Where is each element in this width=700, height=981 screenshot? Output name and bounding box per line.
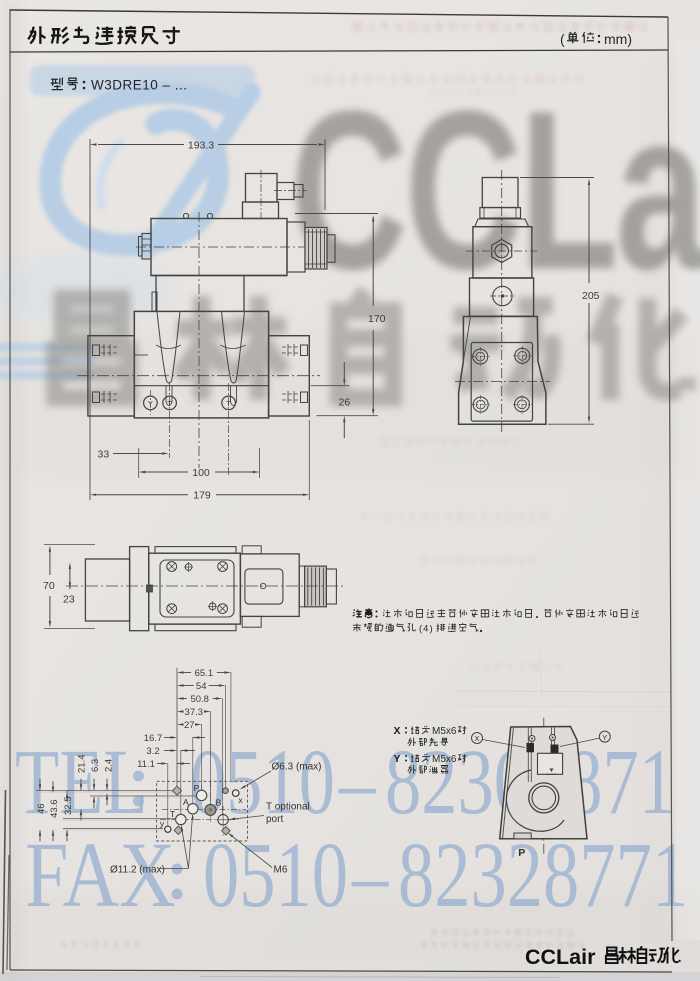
svg-text:26: 26 (339, 397, 351, 409)
svg-text:X: X (394, 725, 401, 737)
svg-text:100: 100 (192, 467, 210, 479)
svg-text:54: 54 (196, 681, 207, 692)
svg-text:2.4: 2.4 (104, 759, 115, 772)
svg-text:33: 33 (98, 449, 110, 461)
svg-text:179: 179 (193, 490, 211, 502)
svg-text:11.1: 11.1 (137, 759, 155, 770)
svg-text:CCLair: CCLair (525, 945, 596, 969)
svg-text:3.2: 3.2 (146, 746, 159, 757)
svg-text:X: X (474, 734, 479, 743)
svg-text:27: 27 (184, 720, 195, 731)
svg-text:P: P (518, 847, 525, 859)
svg-text:21.4: 21.4 (77, 755, 88, 774)
svg-text:46: 46 (36, 803, 47, 814)
svg-text:82328771: 82328771 (398, 825, 688, 928)
svg-text:A: A (183, 797, 189, 807)
svg-text:port: port (266, 814, 283, 825)
svg-text:193.3: 193.3 (188, 140, 214, 152)
svg-text:(4): (4) (419, 624, 434, 635)
svg-text:W3DRE10 – ...: W3DRE10 – ... (91, 78, 188, 93)
svg-text:Ø6.3 (max): Ø6.3 (max) (272, 762, 322, 773)
svg-text:M5x6: M5x6 (432, 726, 457, 737)
svg-text:(: ( (560, 31, 565, 47)
svg-text:B: B (216, 798, 222, 808)
svg-text:M6: M6 (274, 865, 288, 876)
svg-text:Ø11.2 (max): Ø11.2 (max) (110, 865, 165, 876)
svg-text:0510: 0510 (203, 825, 348, 928)
svg-text:6.3: 6.3 (90, 759, 101, 772)
svg-text:Y: Y (602, 733, 607, 742)
svg-text:170: 170 (368, 313, 386, 325)
svg-text:T optional: T optional (266, 802, 310, 813)
svg-text:65.1: 65.1 (195, 668, 214, 679)
svg-text:M5x6: M5x6 (432, 754, 457, 765)
svg-text:–: – (351, 825, 389, 928)
svg-text:T: T (170, 809, 175, 819)
svg-text:0510: 0510 (190, 732, 335, 835)
svg-text:43.6: 43.6 (49, 800, 60, 819)
svg-text:37.3: 37.3 (185, 707, 204, 718)
svg-text:16.7: 16.7 (144, 733, 163, 744)
svg-text:Y: Y (394, 753, 401, 765)
svg-text:mm): mm) (604, 31, 632, 47)
svg-text:–: – (338, 732, 376, 835)
svg-text:70: 70 (43, 580, 55, 592)
svg-text:50.8: 50.8 (190, 694, 209, 705)
svg-text:32.5: 32.5 (63, 797, 74, 816)
svg-text:P: P (194, 783, 200, 793)
svg-text:205: 205 (582, 290, 600, 302)
svg-text:23: 23 (63, 594, 75, 606)
